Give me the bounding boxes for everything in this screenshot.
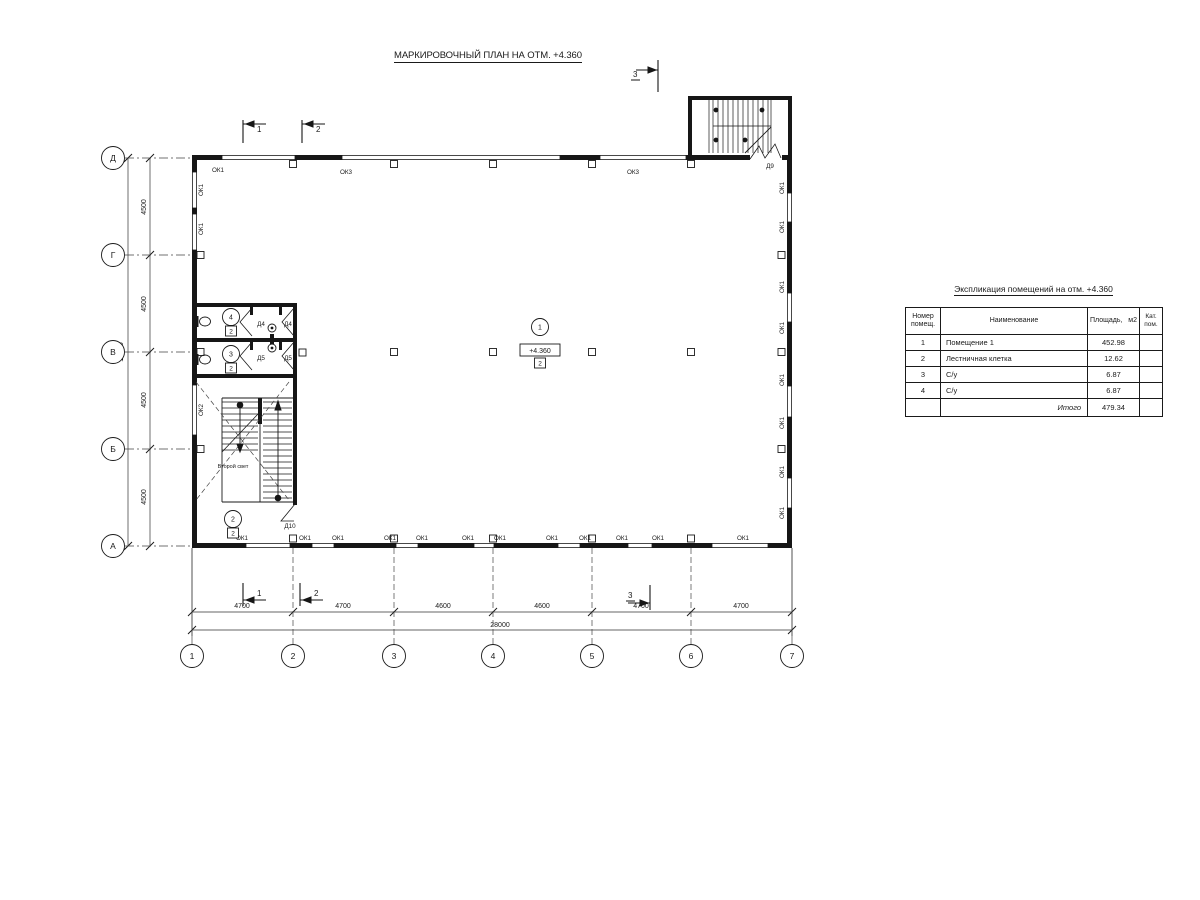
col-header-cat: Кат. пом.: [1140, 308, 1163, 335]
window-label: ОК1: [779, 506, 786, 519]
schedule-cell-area: 6.87: [1088, 367, 1140, 383]
axis-label: 2: [291, 651, 296, 661]
section-mark-2-top: 2: [302, 120, 325, 143]
window-label: ОК1: [779, 321, 786, 334]
section-label: 3: [633, 70, 638, 79]
window-label: ОК3: [340, 169, 353, 176]
axis-row-Г: Г: [102, 244, 193, 267]
window-label: ОК1: [546, 535, 559, 542]
columns: [197, 161, 785, 543]
window: [192, 385, 196, 435]
window-label: ОК1: [212, 167, 225, 174]
axis-label: 5: [590, 651, 595, 661]
section-label: 2: [314, 589, 319, 598]
door-label: Д5: [257, 355, 265, 362]
category-value: 2: [229, 366, 233, 373]
window-label: ОК1: [737, 535, 750, 542]
schedule-cell-name: С/у: [941, 367, 1088, 383]
col-header-name: Наименование: [941, 308, 1088, 335]
room-schedule: Экспликация помещений на отм. +4.360 Ном…: [905, 284, 1162, 417]
door-labels: Д4Д4Д5Д5Д9Д10: [257, 163, 774, 530]
schedule-cell-num: 2: [906, 351, 941, 367]
section-label: 3: [628, 591, 633, 600]
axis-label: 4: [491, 651, 496, 661]
axis-label: 1: [190, 651, 195, 661]
dim-label: 4600: [435, 603, 451, 610]
window: [246, 543, 290, 547]
window-label: ОК1: [198, 183, 205, 196]
window-label: ОК1: [779, 373, 786, 386]
schedule-cell-num: 3: [906, 367, 941, 383]
sink-icon: [271, 347, 274, 350]
axis-col-6: 6: [680, 548, 703, 668]
axis-col-1: 1: [181, 548, 204, 668]
door-label: Д4: [257, 321, 265, 328]
schedule-row: 1Помещение 1452.98: [906, 335, 1163, 351]
axis-label: Б: [110, 444, 116, 454]
schedule-cell-area: 12.62: [1088, 351, 1140, 367]
drawing-sheet: МАРКИРОВОЧНЫЙ ПЛАН НА ОТМ. +4.360: [0, 0, 1200, 900]
window-label: ОК1: [299, 535, 312, 542]
window-label: ОК1: [779, 220, 786, 233]
room-number: 4: [229, 315, 233, 322]
schedule-cell-cat: [1140, 335, 1163, 351]
wc-icon: [195, 354, 199, 365]
schedule-cell-cat: [1140, 367, 1163, 383]
axis-row-Б: Б: [102, 438, 193, 461]
window-label: ОК1: [198, 222, 205, 235]
exterior-stair: [688, 96, 792, 159]
section-label: 1: [257, 125, 262, 134]
window: [600, 155, 686, 159]
dim-label: 4500: [141, 199, 148, 215]
schedule-table: Номер помещ. Наименование Площадь, м2 Ка…: [905, 307, 1163, 417]
axis-bubbles-bottom: 1234567: [181, 548, 804, 668]
col-header-num: Номер помещ.: [906, 308, 941, 335]
wc-icon: [195, 316, 199, 327]
window-label: ОК1: [494, 535, 507, 542]
toilet-block: [192, 303, 297, 378]
second-light-label: Второй свет: [218, 463, 249, 470]
axis-col-7: 7: [781, 548, 804, 668]
category-value: 2: [538, 361, 542, 368]
schedule-cell-empty: [1140, 399, 1163, 417]
wc-icon: [200, 355, 211, 364]
room-tag-2: 22: [225, 511, 242, 539]
schedule-total-row: Итого479.34: [906, 399, 1163, 417]
section-mark-2-bottom: 2: [300, 583, 323, 606]
dim-label: 4700: [335, 603, 351, 610]
window-label: ОК1: [652, 535, 665, 542]
sink-icon: [271, 327, 274, 330]
schedule-header-row: Номер помещ. Наименование Площадь, м2 Ка…: [906, 308, 1163, 335]
category-value: 2: [231, 531, 235, 538]
section-mark-1-top: 1: [243, 120, 266, 143]
elevation-value: +4.360: [529, 348, 551, 355]
axis-label: В: [110, 347, 116, 357]
axis-row-Д: Д: [102, 147, 193, 170]
window: [558, 543, 580, 547]
axis-label: Д: [110, 153, 116, 163]
void-dashed-x: [196, 382, 289, 500]
floor-plan: 4500450045004500180004700470046004600470…: [0, 0, 1200, 900]
window: [712, 543, 768, 547]
room-number: 1: [538, 325, 542, 332]
window: [628, 543, 652, 547]
schedule-cell-name: Помещение 1: [941, 335, 1088, 351]
axis-label: Г: [111, 250, 116, 260]
section-marks: 1 2 3 1 2: [243, 60, 658, 610]
drawing-title: МАРКИРОВОЧНЫЙ ПЛАН НА ОТМ. +4.360: [394, 50, 582, 63]
window: [342, 155, 560, 159]
window-label: ОК1: [416, 535, 429, 542]
door-label: Д10: [284, 523, 296, 530]
window: [787, 293, 791, 322]
window: [312, 543, 334, 547]
axis-label: А: [110, 541, 116, 551]
window-label: ОК1: [462, 535, 475, 542]
axis-col-5: 5: [581, 548, 604, 668]
dim-label: 4500: [141, 489, 148, 505]
wc-icon: [200, 317, 211, 326]
axis-col-3: 3: [383, 548, 406, 668]
axis-col-2: 2: [282, 548, 305, 668]
dim-label: 4700: [234, 603, 250, 610]
axis-row-А: А: [102, 535, 193, 558]
axis-label: 7: [790, 651, 795, 661]
schedule-cell-cat: [1140, 351, 1163, 367]
section-mark-3-top: 3: [631, 60, 658, 92]
window: [474, 543, 494, 547]
schedule-cell-num: 1: [906, 335, 941, 351]
window-label: ОК3: [627, 169, 640, 176]
window: [787, 386, 791, 417]
dimensions: 4500450045004500180004700470046004600470…: [118, 154, 796, 636]
window: [787, 193, 791, 222]
door-swing-d10: [281, 504, 295, 521]
schedule-row: 2Лестничная клетка12.62: [906, 351, 1163, 367]
window-label: ОК1: [384, 535, 397, 542]
window-label: ОК1: [332, 535, 345, 542]
schedule-cell-name: С/у: [941, 383, 1088, 399]
category-value: 2: [229, 329, 233, 336]
schedule-total-label: Итого: [941, 399, 1088, 417]
door-label: Д4: [284, 321, 292, 328]
schedule-cell-name: Лестничная клетка: [941, 351, 1088, 367]
dim-label: 4500: [141, 392, 148, 408]
window-label: ОК1: [779, 416, 786, 429]
window: [192, 172, 196, 208]
window-label: ОК1: [779, 465, 786, 478]
room-tag-4: 42: [223, 309, 240, 337]
window: [192, 214, 196, 250]
section-label: 2: [316, 125, 321, 134]
window-label: ОК1: [616, 535, 629, 542]
door-opening: [750, 155, 782, 160]
dim-ticks-outer: [124, 154, 796, 634]
schedule-cell-empty: [906, 399, 941, 417]
schedule-cell-cat: [1140, 383, 1163, 399]
axis-col-4: 4: [482, 548, 505, 668]
schedule-row: 4С/у6.87: [906, 383, 1163, 399]
col-header-area: Площадь, м2: [1088, 308, 1140, 335]
schedule-total-value: 479.34: [1088, 399, 1140, 417]
door-label: Д9: [766, 163, 774, 170]
schedule-cell-area: 6.87: [1088, 383, 1140, 399]
door-label: Д5: [284, 355, 292, 362]
window: [222, 155, 295, 159]
dim-label: 4700: [733, 603, 749, 610]
room-tag-3: 32: [223, 346, 240, 374]
schedule-cell-num: 4: [906, 383, 941, 399]
axis-label: 6: [689, 651, 694, 661]
room-number: 3: [229, 352, 233, 359]
window-label: ОК1: [779, 181, 786, 194]
window-label: ОК1: [779, 280, 786, 293]
stairwell: [196, 378, 297, 521]
schedule-title: Экспликация помещений на отм. +4.360: [905, 284, 1162, 294]
dim-label: 4500: [141, 296, 148, 312]
stair-dots: [714, 108, 765, 143]
dim-labels: 4500450045004500180004700470046004600470…: [118, 199, 749, 629]
window: [396, 543, 418, 547]
room-tag-1: 1+4.3602: [520, 319, 560, 369]
window-label: ОК1: [579, 535, 592, 542]
axis-row-В: В: [102, 341, 193, 364]
stair-treads: [222, 402, 292, 498]
stair-treads: [709, 99, 771, 153]
window-label: ОК2: [198, 403, 205, 416]
axis-label: 3: [392, 651, 397, 661]
dim-label: 4600: [534, 603, 550, 610]
section-label: 1: [257, 589, 262, 598]
schedule-row: 3С/у6.87: [906, 367, 1163, 383]
schedule-cell-area: 452.98: [1088, 335, 1140, 351]
window: [787, 478, 791, 508]
room-number: 2: [231, 517, 235, 524]
